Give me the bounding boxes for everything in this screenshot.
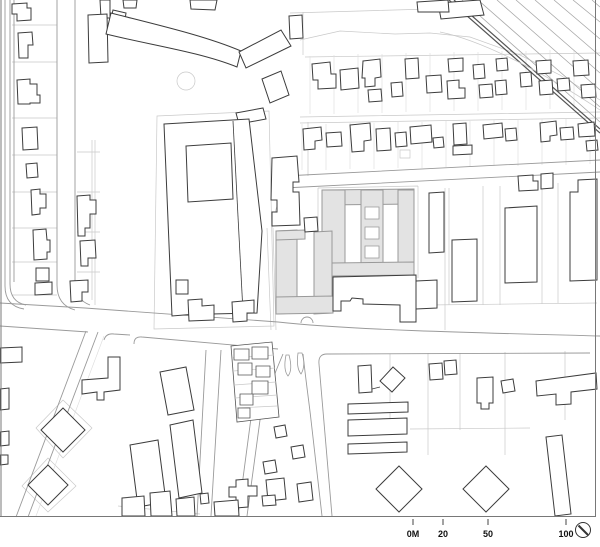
scale-label-100: 100 [558, 529, 573, 539]
site-plan-page: 0M 20 50 100 [0, 0, 600, 547]
site-plan-map: 0M 20 50 100 [0, 0, 600, 547]
scale-bar: 0M 20 50 100 [407, 519, 574, 539]
buildings-layer [0, 0, 598, 516]
north-arrow-icon [576, 523, 591, 538]
scale-label-0m: 0M [407, 529, 420, 539]
scale-label-50: 50 [483, 529, 493, 539]
scale-label-20: 20 [438, 529, 448, 539]
